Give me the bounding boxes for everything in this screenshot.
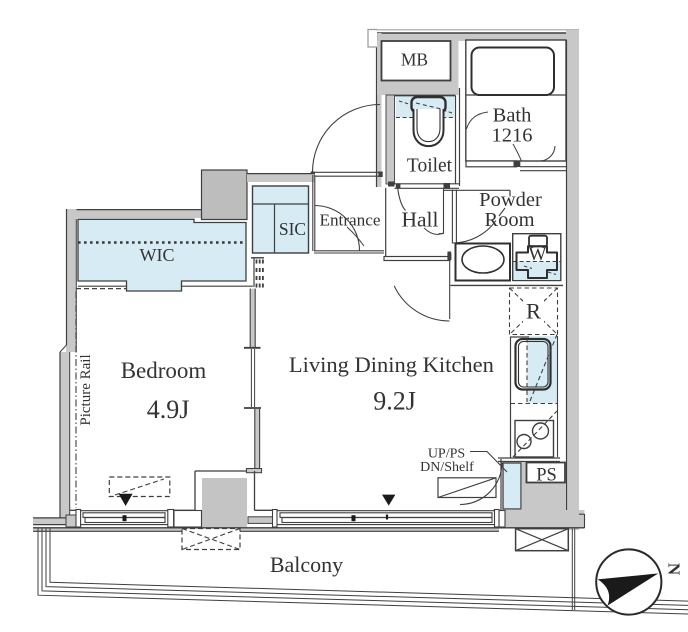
svg-text:1216: 1216 — [492, 125, 533, 147]
svg-text:SIC: SIC — [279, 219, 306, 239]
svg-text:Picture Rail: Picture Rail — [78, 354, 94, 425]
svg-text:4.9J: 4.9J — [147, 395, 190, 424]
svg-text:W: W — [529, 244, 547, 265]
svg-text:PS: PS — [536, 466, 557, 486]
svg-text:WIC: WIC — [140, 245, 175, 265]
svg-text:Bath: Bath — [493, 105, 532, 127]
svg-text:MB: MB — [401, 50, 428, 70]
svg-text:Hall: Hall — [401, 208, 438, 232]
svg-text:Living Dining Kitchen: Living Dining Kitchen — [289, 352, 494, 377]
svg-text:R: R — [526, 299, 541, 324]
svg-text:Toilet: Toilet — [407, 156, 453, 177]
svg-text:9.2J: 9.2J — [373, 387, 416, 416]
svg-text:Entrance: Entrance — [319, 211, 380, 230]
svg-text:Bedroom: Bedroom — [121, 358, 207, 383]
svg-text:Balcony: Balcony — [270, 552, 343, 577]
svg-text:DN/Shelf: DN/Shelf — [420, 460, 474, 475]
svg-text:Powder: Powder — [479, 189, 542, 211]
svg-text:Room: Room — [484, 209, 534, 231]
svg-text:N: N — [665, 563, 684, 576]
